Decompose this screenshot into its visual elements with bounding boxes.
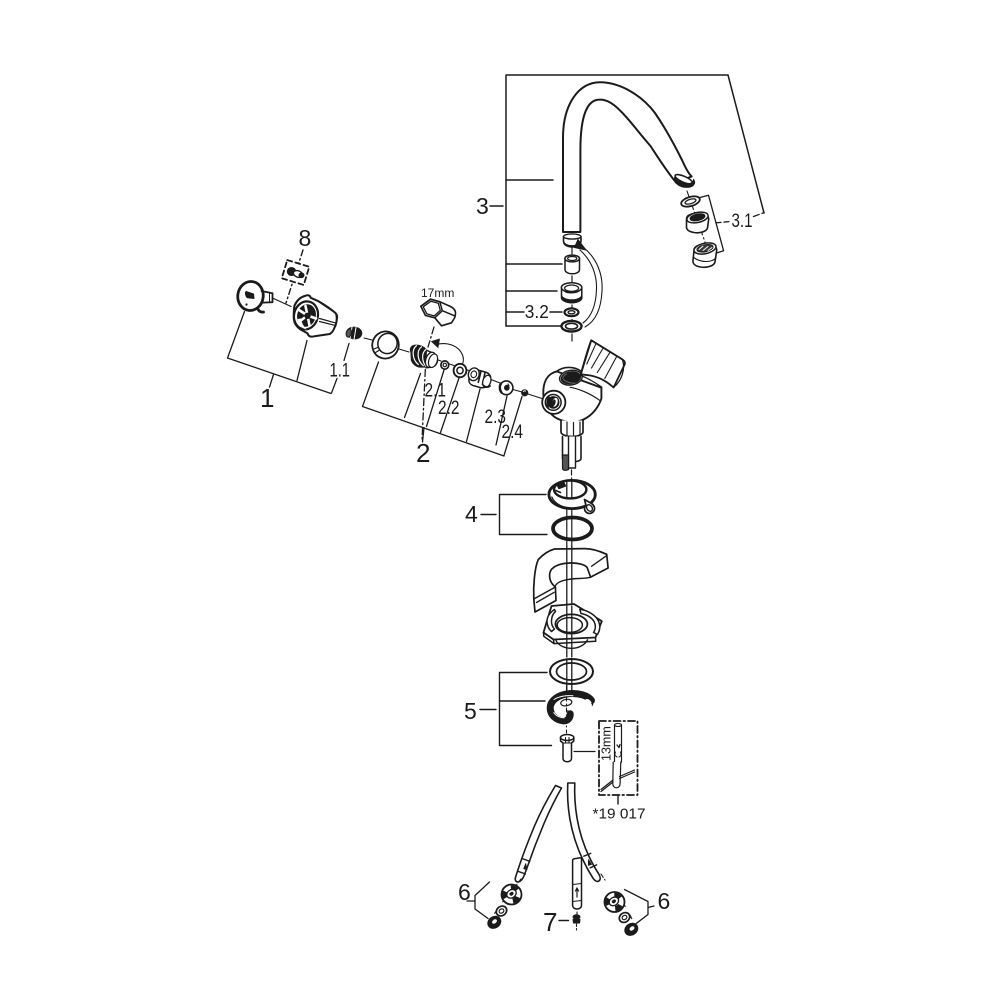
svg-text:*19 017: *19 017 xyxy=(593,806,646,823)
svg-text:6: 6 xyxy=(658,888,671,914)
svg-text:3: 3 xyxy=(476,193,489,219)
svg-text:4: 4 xyxy=(465,501,478,527)
svg-text:2.2: 2.2 xyxy=(438,397,460,419)
svg-text:13mm: 13mm xyxy=(600,726,614,761)
svg-text:7: 7 xyxy=(543,907,557,937)
svg-text:1: 1 xyxy=(260,383,274,413)
svg-text:3.1: 3.1 xyxy=(732,211,753,232)
svg-text:2.4: 2.4 xyxy=(502,421,524,443)
svg-text:17mm: 17mm xyxy=(421,286,454,300)
svg-text:2: 2 xyxy=(416,438,430,468)
svg-text:1.1: 1.1 xyxy=(330,360,351,382)
svg-text:3.2: 3.2 xyxy=(525,302,549,322)
svg-text:6: 6 xyxy=(458,879,471,905)
svg-text:8: 8 xyxy=(299,225,312,251)
svg-text:5: 5 xyxy=(464,698,477,724)
